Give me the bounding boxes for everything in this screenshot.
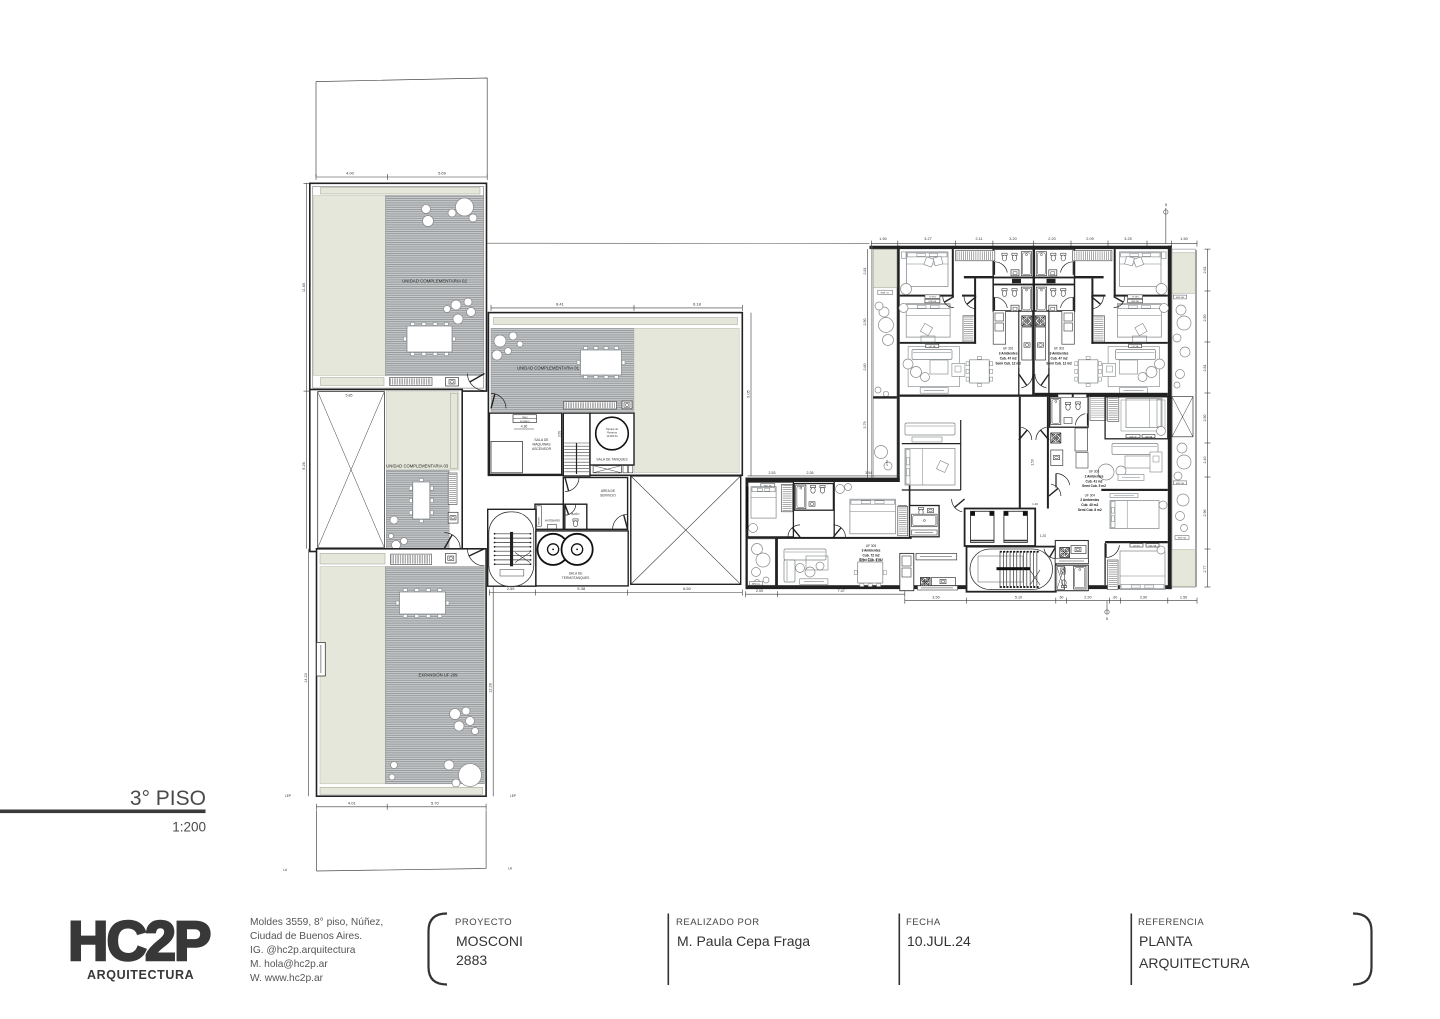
svg-text:Moldes 3559, 8° piso, Núñez,: Moldes 3559, 8° piso, Núñez, (250, 917, 383, 928)
svg-text:2SK OP: 2SK OP (1129, 436, 1137, 438)
svg-text:2.11: 2.11 (975, 237, 982, 241)
svg-text:2.60: 2.60 (863, 364, 867, 371)
svg-text:2.90: 2.90 (1140, 595, 1147, 599)
svg-text:Semi Cub. 5 m2: Semi Cub. 5 m2 (1082, 484, 1106, 488)
svg-text:2.96: 2.96 (1203, 510, 1207, 517)
svg-text:1.50: 1.50 (1031, 459, 1035, 465)
svg-text:2.55: 2.55 (507, 586, 516, 591)
svg-text:LM. SA.: LM. SA. (929, 345, 937, 348)
svg-text:6.18: 6.18 (693, 301, 702, 306)
svg-text:PALIER: PALIER (538, 517, 541, 525)
svg-text:5.38: 5.38 (577, 586, 586, 591)
svg-text:1.50: 1.50 (1180, 595, 1187, 599)
svg-text:10.000 lts: 10.000 lts (606, 434, 618, 438)
svg-text:SALA DE: SALA DE (569, 572, 584, 576)
svg-text:3.25: 3.25 (1124, 237, 1131, 241)
svg-text:Semi Cub. 12 m2: Semi Cub. 12 m2 (1046, 361, 1072, 365)
svg-text:10.JUL.24: 10.JUL.24 (907, 933, 971, 949)
svg-text:UF 302: UF 302 (1054, 346, 1065, 350)
svg-text:FECHA: FECHA (906, 917, 941, 928)
svg-text:2.50: 2.50 (1203, 315, 1207, 322)
svg-text:Cub. 72 m2: Cub. 72 m2 (862, 553, 879, 557)
svg-text:3° PISO: 3° PISO (130, 787, 206, 810)
svg-text:Tanque de: Tanque de (606, 427, 619, 431)
svg-text:SALA DE TANQUES: SALA DE TANQUES (596, 458, 628, 462)
svg-text:ARQUITECTURA: ARQUITECTURA (1139, 955, 1250, 971)
svg-text:LM6 NA: LM6 NA (1145, 435, 1153, 438)
svg-text:9.26: 9.26 (302, 462, 306, 469)
svg-text:2.20: 2.20 (1084, 595, 1091, 599)
svg-text:2.40: 2.40 (1203, 457, 1207, 464)
svg-text:.60: .60 (1112, 595, 1117, 599)
svg-text:TANQ: TANQ (522, 416, 528, 419)
svg-text:3.79: 3.79 (863, 422, 867, 429)
svg-text:W. www.hc2p.ar: W. www.hc2p.ar (250, 973, 324, 984)
svg-text:12.28: 12.28 (489, 683, 493, 693)
svg-text:LM6. NA.: LM6. NA. (1148, 544, 1157, 547)
svg-text:9.05: 9.05 (747, 390, 751, 397)
svg-text:UF 304: UF 304 (1085, 493, 1096, 497)
svg-text:TV 3KS: TV 3KS (1132, 297, 1140, 299)
svg-text:8.41: 8.41 (556, 301, 565, 306)
svg-text:UF 305: UF 305 (866, 544, 877, 548)
svg-text:LEP: LEP (285, 794, 291, 798)
svg-text:5.85: 5.85 (346, 393, 353, 397)
svg-text:2 Ambientes: 2 Ambientes (1085, 475, 1104, 479)
svg-text:2.50: 2.50 (885, 460, 889, 466)
svg-text:5.69: 5.69 (438, 171, 447, 176)
svg-text:M. hola@hc2p.ar: M. hola@hc2p.ar (250, 959, 328, 970)
svg-text:LM. SA.: LM. SA. (1132, 345, 1140, 348)
svg-text:ARQUITECTURA: ARQUITECTURA (87, 968, 194, 982)
svg-text:Reserva: Reserva (607, 430, 617, 434)
svg-text:3.20: 3.20 (1009, 237, 1016, 241)
svg-text:LINE KA.: LINE KA. (928, 300, 937, 303)
svg-text:UF 303: UF 303 (1089, 470, 1100, 474)
svg-text:UNIDAD COMPLEMENTARIA 02: UNIDAD COMPLEMENTARIA 02 (402, 279, 467, 284)
svg-text:ASCENSOR: ASCENSOR (532, 447, 552, 451)
svg-text:2.77: 2.77 (1203, 566, 1207, 573)
svg-text:AREA DE: AREA DE (601, 489, 616, 493)
svg-text:2.81: 2.81 (1203, 365, 1207, 372)
svg-text:2.09: 2.09 (1086, 237, 1093, 241)
svg-text:2.50: 2.50 (863, 319, 867, 326)
svg-text:2.26: 2.26 (807, 471, 814, 475)
svg-text:1M 3K1: 1M 3K1 (1133, 545, 1141, 547)
svg-text:ANTEBAÑO: ANTEBAÑO (545, 518, 561, 523)
svg-text:SEMI. CU.: SEMI. CU. (881, 293, 890, 295)
svg-text:2.81: 2.81 (863, 268, 867, 275)
svg-text:SERVICIO: SERVICIO (600, 493, 616, 497)
svg-text:3 Ambientes: 3 Ambientes (862, 549, 881, 553)
svg-text:3.54: 3.54 (865, 471, 872, 475)
svg-text:MAQUINAS: MAQUINAS (532, 443, 551, 447)
svg-text:3 Ambientes: 3 Ambientes (1050, 351, 1069, 355)
svg-text:SEMI. NA.: SEMI. NA. (1176, 482, 1185, 485)
svg-text:REFERENCIA: REFERENCIA (1138, 917, 1204, 928)
svg-text:MOSCONI: MOSCONI (456, 933, 523, 949)
svg-text:5.70: 5.70 (431, 800, 440, 805)
svg-text:1.20: 1.20 (1032, 502, 1038, 506)
svg-text:EXPANSIÓN UF 209: EXPANSIÓN UF 209 (418, 673, 458, 678)
svg-text:Semi Cub. 6 m2: Semi Cub. 6 m2 (859, 558, 883, 562)
svg-text:2883: 2883 (456, 952, 487, 968)
svg-text:7.47: 7.47 (838, 589, 845, 593)
svg-text:SEMI CU.: SEMI CU. (752, 583, 761, 585)
svg-text:2.81: 2.81 (1203, 267, 1207, 274)
svg-text:Ciudad de Buenos Aires.: Ciudad de Buenos Aires. (250, 931, 362, 942)
svg-text:1.50: 1.50 (879, 237, 886, 241)
svg-text:UF 301: UF 301 (1003, 346, 1014, 350)
svg-text:3.50: 3.50 (558, 431, 562, 437)
svg-text:UNIDAD COMPLEMENTARIA 01: UNIDAD COMPLEMENTARIA 01 (517, 365, 579, 370)
svg-text:2.20: 2.20 (1048, 237, 1055, 241)
svg-text:4.36: 4.36 (521, 425, 528, 429)
svg-text:UNIDAD COMPLEMENTARIA 03: UNIDAD COMPLEMENTARIA 03 (386, 463, 448, 468)
svg-text:Cub. 47 m2: Cub. 47 m2 (1000, 356, 1017, 360)
svg-text:4.00: 4.00 (346, 171, 355, 176)
svg-text:HC2P: HC2P (68, 909, 210, 972)
svg-text:SALA DE: SALA DE (534, 438, 549, 442)
svg-text:PROYECTO: PROYECTO (455, 917, 512, 928)
svg-text:TERMOTANQUES: TERMOTANQUES (562, 576, 590, 580)
svg-text:2 Ambientes: 2 Ambientes (1080, 498, 1099, 502)
svg-text:5.10: 5.10 (1015, 595, 1022, 599)
svg-text:2.50: 2.50 (1203, 415, 1207, 422)
svg-text:M. Paula Cepa Fraga: M. Paula Cepa Fraga (677, 933, 810, 949)
svg-text:1:200: 1:200 (172, 820, 206, 835)
svg-text:IG. @hc2p.arquitectura: IG. @hc2p.arquitectura (250, 945, 356, 956)
svg-text:Semi Cub. 12 m2: Semi Cub. 12 m2 (995, 361, 1021, 365)
svg-text:2.53: 2.53 (769, 471, 776, 475)
svg-text:LINE KA.: LINE KA. (1131, 300, 1140, 303)
svg-text:Cub. 40 m2: Cub. 40 m2 (1081, 503, 1098, 507)
svg-text:14.23: 14.23 (304, 673, 308, 683)
svg-text:3.50: 3.50 (932, 595, 939, 599)
svg-text:PLANTA: PLANTA (1139, 933, 1193, 949)
svg-text:Semi Cub. 8 m2: Semi Cub. 8 m2 (1078, 508, 1102, 512)
svg-text:6.50: 6.50 (683, 586, 692, 591)
svg-text:1.50: 1.50 (1180, 237, 1187, 241)
svg-text:3.27: 3.27 (924, 237, 931, 241)
svg-text:.60: .60 (1059, 595, 1064, 599)
svg-text:REALIZADO POR: REALIZADO POR (676, 917, 760, 928)
svg-text:BOMBEO: BOMBEO (520, 421, 530, 423)
svg-text:3 Ambientes: 3 Ambientes (999, 351, 1018, 355)
svg-text:2.00: 2.00 (756, 589, 763, 593)
svg-text:LEP: LEP (510, 794, 516, 798)
svg-text:1.20: 1.20 (1040, 534, 1046, 538)
svg-text:SEMI. NA.: SEMI. NA. (1178, 537, 1187, 540)
svg-text:TV 3KS: TV 3KS (929, 297, 937, 299)
svg-text:4.01: 4.01 (348, 800, 357, 805)
svg-text:SEMI. NA.: SEMI. NA. (1176, 296, 1185, 299)
svg-text:Cub. 41 m2: Cub. 41 m2 (1085, 479, 1102, 483)
svg-text:11.60: 11.60 (302, 283, 306, 292)
svg-text:Cub. 47 m2: Cub. 47 m2 (1050, 356, 1067, 360)
